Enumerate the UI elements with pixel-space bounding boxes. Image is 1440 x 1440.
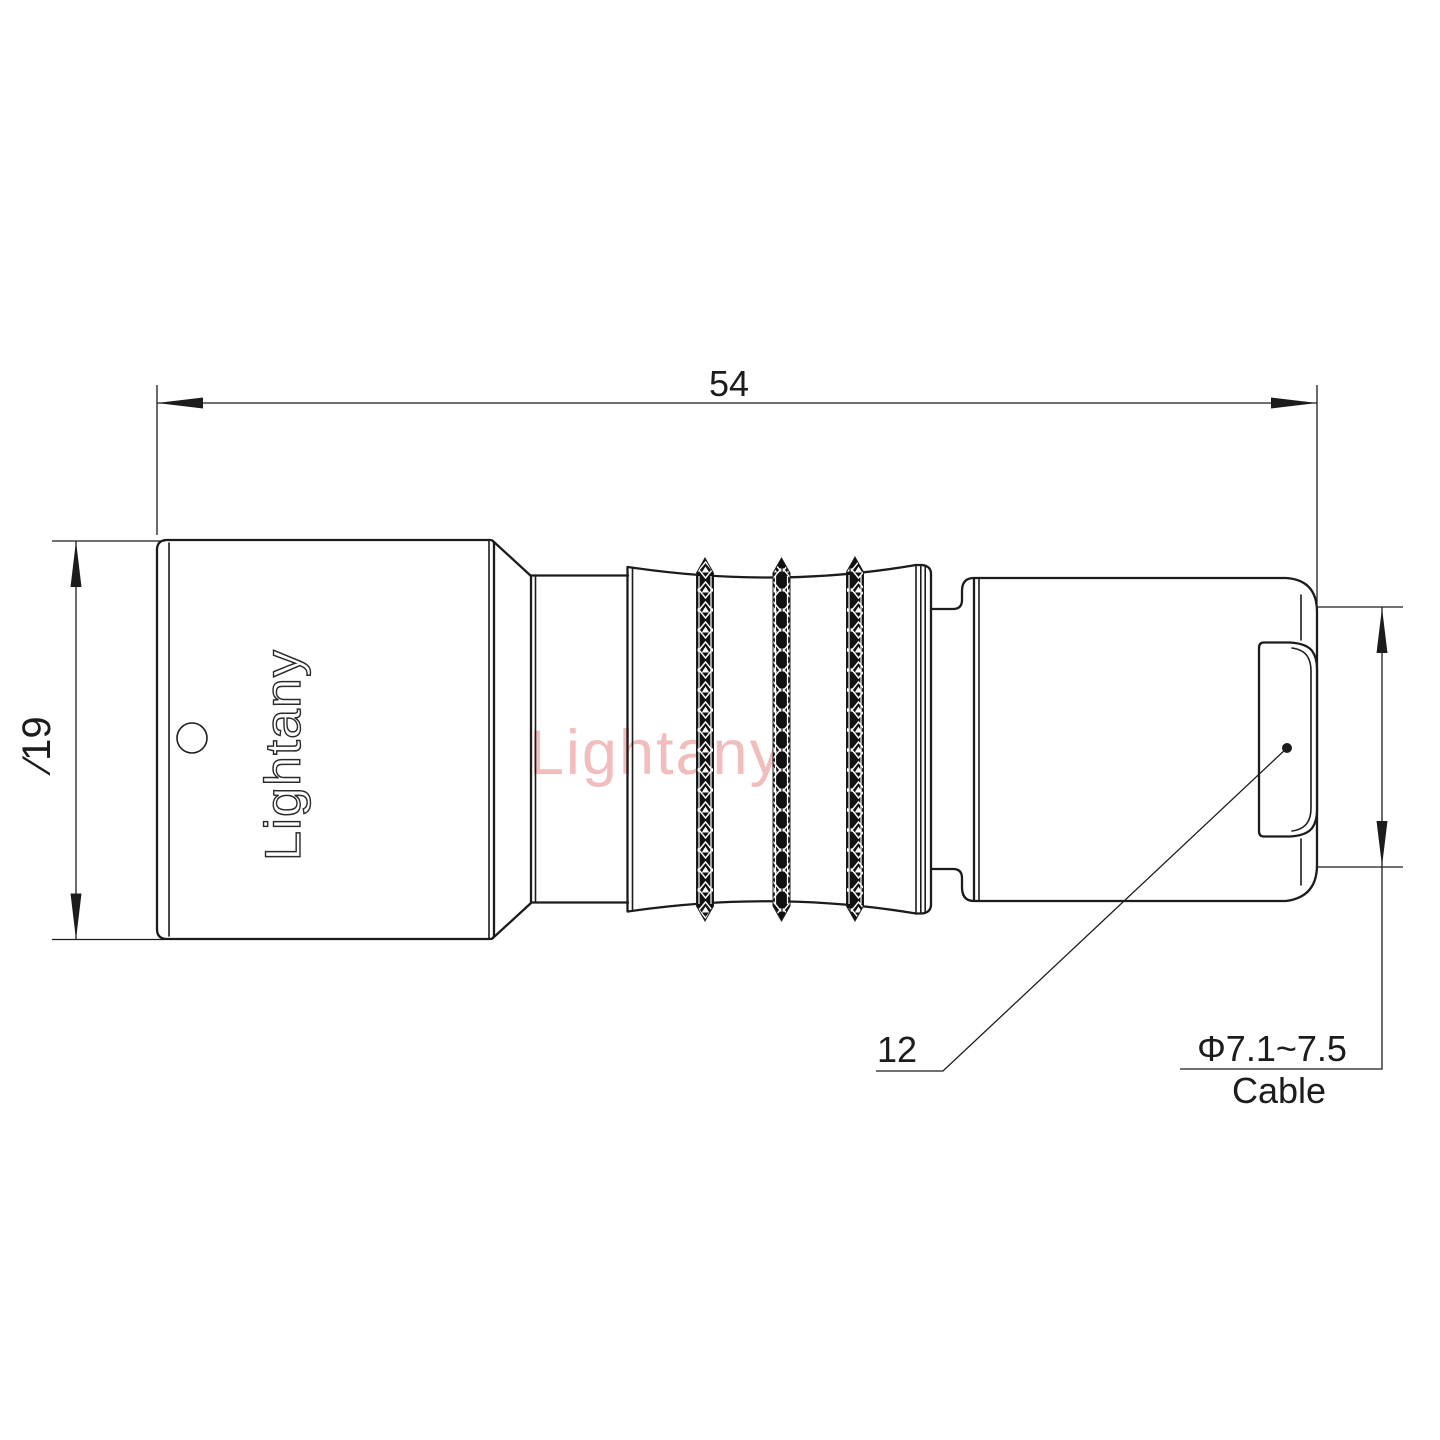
arrow-left [157,398,203,409]
vent-hole [177,723,207,753]
overall-length-value: 54 [709,363,749,404]
arrow-right [1271,398,1317,409]
technical-drawing-page: Lightany Lightany [0,0,1440,1440]
cable-bushing-outline [1259,643,1317,837]
watermark-text: Lightany [529,718,783,788]
grip-bottom-curve [628,901,916,913]
arrow-down [71,894,82,940]
leader-line [876,748,1287,1071]
connector-side-view-drawing: Lightany Lightany [0,0,1440,1440]
arrow-up [71,541,82,587]
dimension-body-diameter: ∕19 [15,541,165,940]
body-diameter-value: ∕19 [15,716,59,776]
groove-bottom-edge [931,869,974,901]
arrow-down [1377,821,1388,866]
arrow-up [1377,608,1388,653]
brand-engraving-text: Lightany [255,649,311,861]
grip-right-collar-lines [916,565,921,914]
rear-label-value: 12 [877,1029,917,1070]
groove-top-edge [931,578,974,609]
dimension-overall-length: 54 [157,363,1317,604]
taper-bottom-edge [494,903,531,937]
cable-diameter-range: Φ7.1~7.5 [1197,1028,1347,1069]
grip-top-curve [628,565,916,578]
leader-rear-label: 12 [876,748,1287,1071]
taper-top-edge [494,542,531,576]
grip-right-collar-outline [916,565,931,914]
cable-label: Cable [1232,1070,1326,1111]
